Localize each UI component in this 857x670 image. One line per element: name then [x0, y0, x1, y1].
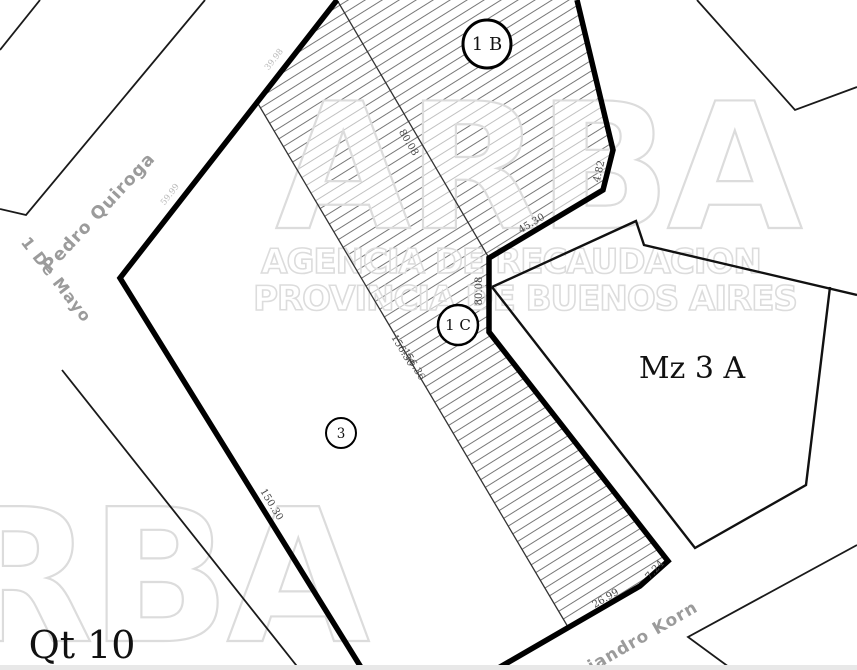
dim-80-08-b: 80.08: [474, 277, 485, 306]
parcel-1c-label: 1 C: [445, 316, 471, 334]
map-bottom-edge-band: [0, 665, 857, 670]
cadastral-map: ARBA AGENCIA DE RECAUDACION PROVINCIA DE…: [0, 0, 857, 670]
parcel-3-label: 3: [337, 426, 346, 442]
block-mz3a-label: Mz 3 A: [639, 351, 746, 386]
watermark-arba-center: ARBA: [275, 67, 802, 270]
parcel-1b-label: 1 B: [472, 34, 502, 55]
quarter-qt10-label: Qt 10: [29, 623, 136, 667]
cadastral-map-viewport: ARBA AGENCIA DE RECAUDACION PROVINCIA DE…: [0, 0, 857, 670]
watermark-agency-line2: PROVINCIA DE BUENOS AIRES: [253, 279, 797, 319]
